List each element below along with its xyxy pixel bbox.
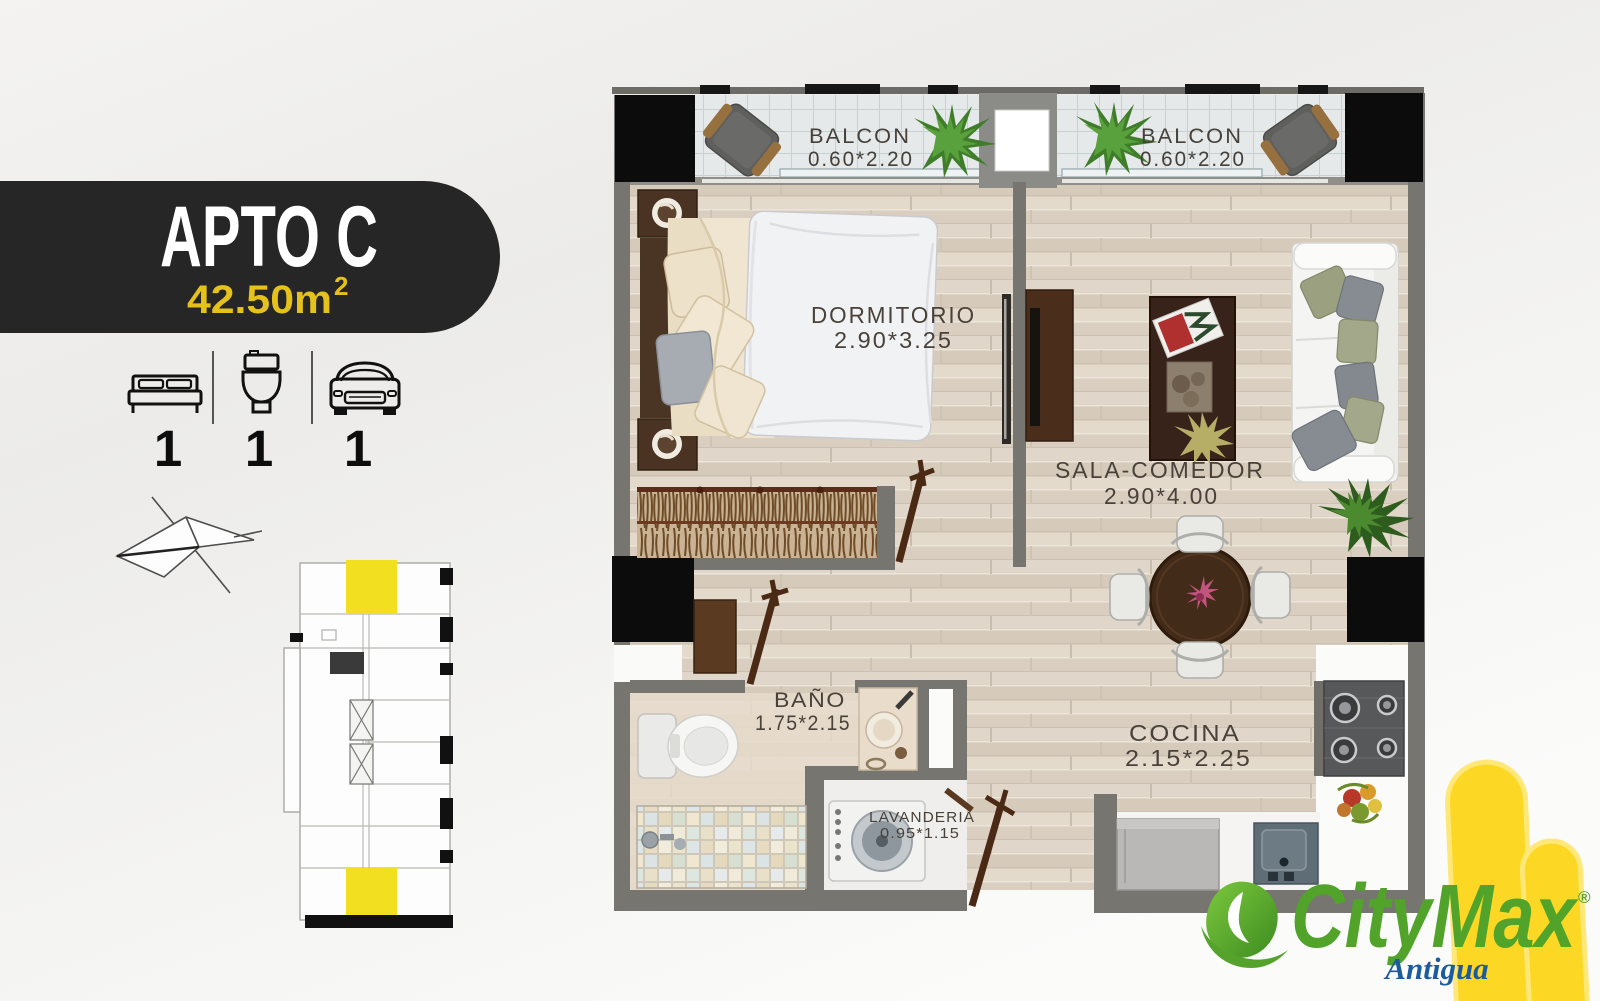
svg-text:COCINA: COCINA	[1129, 720, 1241, 746]
svg-text:®: ®	[1578, 888, 1591, 907]
svg-text:SALA-COMEDOR: SALA-COMEDOR	[1055, 457, 1265, 483]
svg-text:BAÑO: BAÑO	[774, 688, 846, 712]
svg-text:1: 1	[154, 420, 182, 477]
svg-text:2.90*4.00: 2.90*4.00	[1104, 483, 1219, 509]
svg-text:BALCON: BALCON	[1141, 125, 1243, 148]
svg-text:LAVANDERIA: LAVANDERIA	[869, 809, 975, 826]
svg-text:2.15*2.25: 2.15*2.25	[1125, 745, 1252, 771]
svg-text:BALCON: BALCON	[809, 125, 911, 148]
svg-text:1: 1	[344, 420, 372, 477]
svg-text:1: 1	[245, 420, 273, 477]
svg-text:0.95*1.15: 0.95*1.15	[880, 825, 960, 842]
svg-text:DORMITORIO: DORMITORIO	[811, 302, 976, 328]
svg-text:0.60*2.20: 0.60*2.20	[808, 148, 914, 171]
svg-text:1.75*2.15: 1.75*2.15	[755, 712, 851, 735]
svg-text:42.50m: 42.50m	[187, 278, 332, 322]
svg-text:0.60*2.20: 0.60*2.20	[1140, 148, 1246, 171]
svg-text:Antigua: Antigua	[1383, 951, 1488, 986]
svg-text:2: 2	[334, 271, 348, 301]
svg-text:2.90*3.25: 2.90*3.25	[834, 327, 953, 353]
